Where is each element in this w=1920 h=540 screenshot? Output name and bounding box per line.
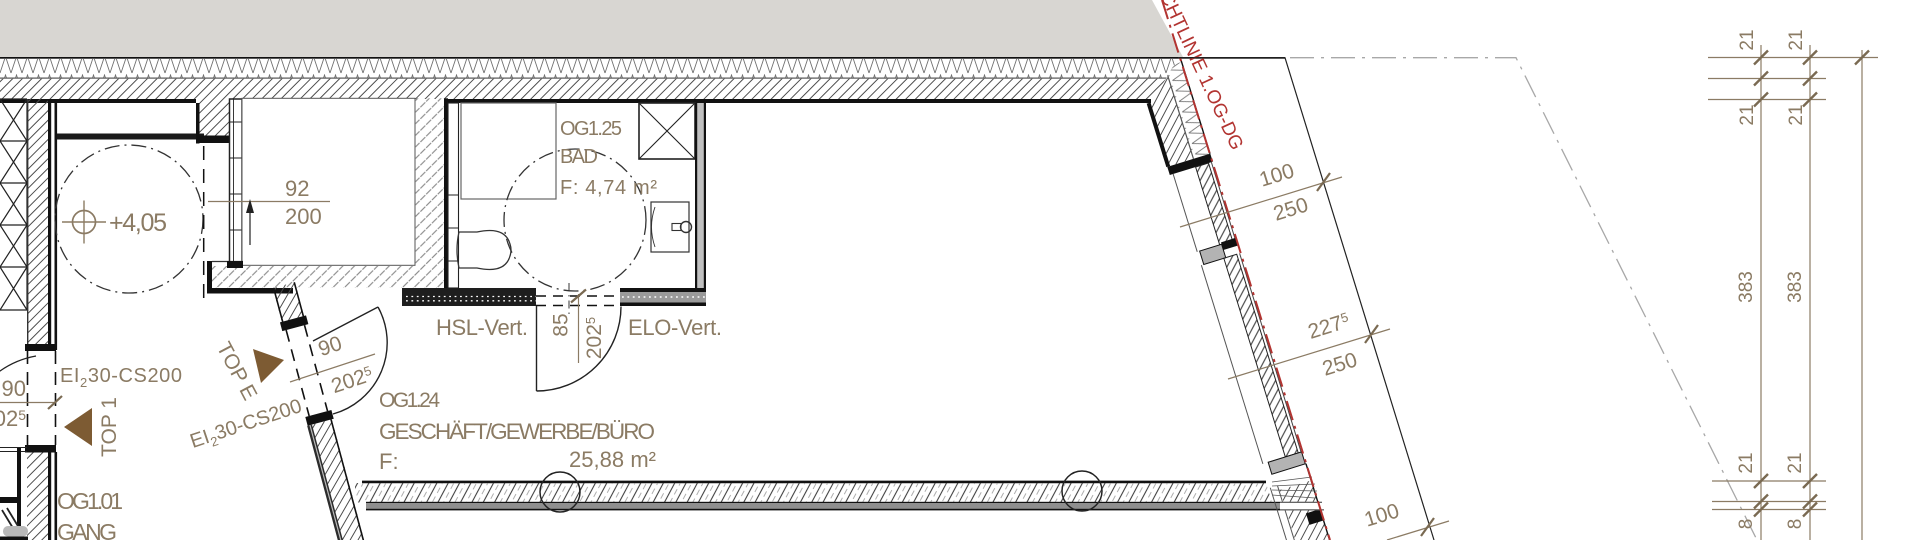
svg-text:21: 21 [1737,29,1758,50]
svg-text:85: 85 [550,313,573,336]
svg-text:+4,05: +4,05 [109,209,167,237]
svg-text:21: 21 [1737,104,1758,125]
svg-text:F: 4,74 m²: F: 4,74 m² [560,177,657,199]
svg-text:OG1.25: OG1.25 [560,118,622,140]
svg-text:92: 92 [285,176,309,201]
svg-text:HSL-Vert.: HSL-Vert. [436,315,528,340]
svg-text:383: 383 [1736,271,1757,303]
svg-text:90: 90 [2,376,26,401]
svg-text:F:: F: [379,449,399,474]
svg-text:EI230-CS200: EI230-CS200 [60,365,182,390]
svg-text:21: 21 [1736,452,1757,473]
svg-text:BAD: BAD [560,146,598,168]
svg-text:GANG: GANG [57,519,117,540]
svg-text:8: 8 [1736,519,1757,530]
svg-text:ELO-Vert.: ELO-Vert. [628,315,722,340]
svg-text:21: 21 [1785,452,1806,473]
svg-text:21: 21 [1786,104,1807,125]
svg-text:TOP 1: TOP 1 [98,397,121,457]
svg-text:25,88 m²: 25,88 m² [569,447,656,472]
svg-text:383: 383 [1785,271,1806,303]
svg-text:8: 8 [1785,519,1806,530]
svg-text:200: 200 [285,204,322,229]
svg-text:OG1.24: OG1.24 [379,389,440,412]
svg-text:21: 21 [1786,29,1807,50]
svg-text:OG1.01: OG1.01 [57,488,123,514]
svg-text:GESCHÄFT/GEWERBE/BÜRO: GESCHÄFT/GEWERBE/BÜRO [379,419,655,444]
